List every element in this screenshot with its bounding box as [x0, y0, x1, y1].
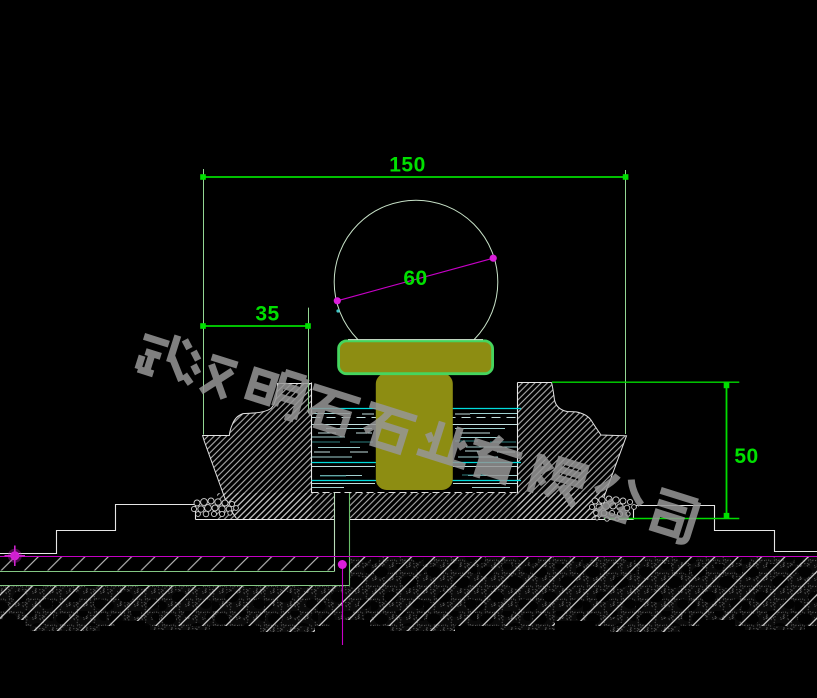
- svg-text:60: 60: [403, 267, 427, 290]
- svg-text:50: 50: [734, 445, 758, 468]
- svg-text:150: 150: [389, 154, 426, 177]
- svg-text:35: 35: [255, 303, 279, 326]
